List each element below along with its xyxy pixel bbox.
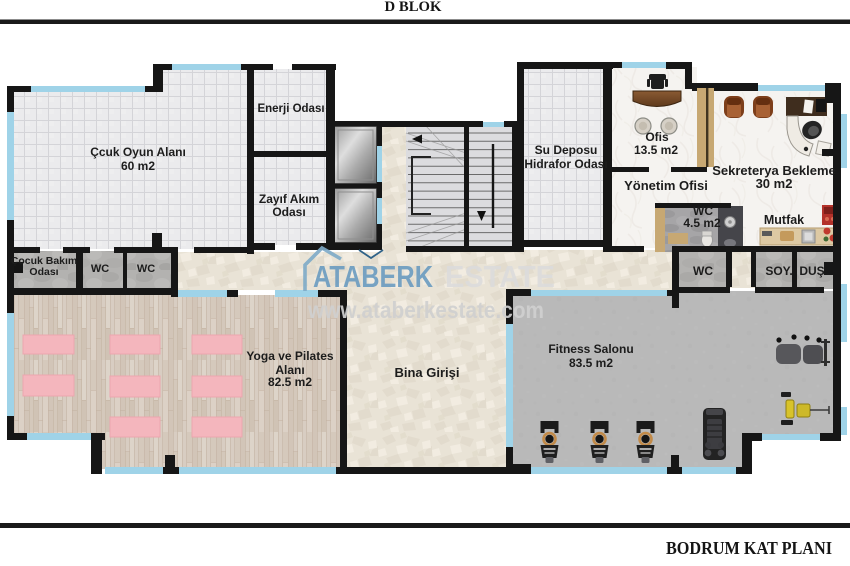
svg-text:Mutfak: Mutfak <box>764 213 804 227</box>
svg-text:Enerji Odası: Enerji Odası <box>257 103 324 115</box>
svg-text:DUŞ: DUŞ <box>799 264 824 278</box>
svg-text:Bina Girişi: Bina Girişi <box>394 365 459 380</box>
svg-text:60 m2: 60 m2 <box>121 159 155 173</box>
svg-text:4.5 m2: 4.5 m2 <box>683 216 721 230</box>
svg-text:Zayıf Akım: Zayıf Akım <box>259 192 319 206</box>
svg-text:30 m2: 30 m2 <box>756 176 793 191</box>
svg-text:ATABERK: ATABERK <box>313 259 433 294</box>
svg-text:WC: WC <box>91 263 109 275</box>
svg-text:D BLOK: D BLOK <box>385 0 442 15</box>
svg-text:83.5 m2: 83.5 m2 <box>569 356 613 370</box>
svg-text:Odası: Odası <box>29 266 58 278</box>
svg-text:ESTATE: ESTATE <box>445 259 555 294</box>
svg-text:82.5 m2: 82.5 m2 <box>268 375 312 389</box>
svg-text:WC: WC <box>137 263 155 275</box>
svg-text:Odası: Odası <box>272 205 305 219</box>
svg-text:WC: WC <box>693 264 713 278</box>
svg-text:Ofis: Ofis <box>645 130 669 144</box>
svg-text:Fitness Salonu: Fitness Salonu <box>548 342 633 356</box>
svg-text:www.ataberkestate.com: www.ataberkestate.com <box>307 297 544 323</box>
svg-text:Çcuk Oyun Alanı: Çcuk Oyun Alanı <box>90 145 186 159</box>
svg-text:BODRUM KAT PLANI: BODRUM KAT PLANI <box>666 538 832 558</box>
svg-text:Hidrafor Odası: Hidrafor Odası <box>524 157 607 171</box>
svg-text:Su Deposu: Su Deposu <box>535 143 598 157</box>
svg-text:13.5 m2: 13.5 m2 <box>634 143 678 157</box>
svg-text:Yönetim Ofisi: Yönetim Ofisi <box>624 178 708 193</box>
svg-text:Yoga ve Pilates: Yoga ve Pilates <box>246 349 333 363</box>
svg-text:SOY.: SOY. <box>765 264 792 278</box>
